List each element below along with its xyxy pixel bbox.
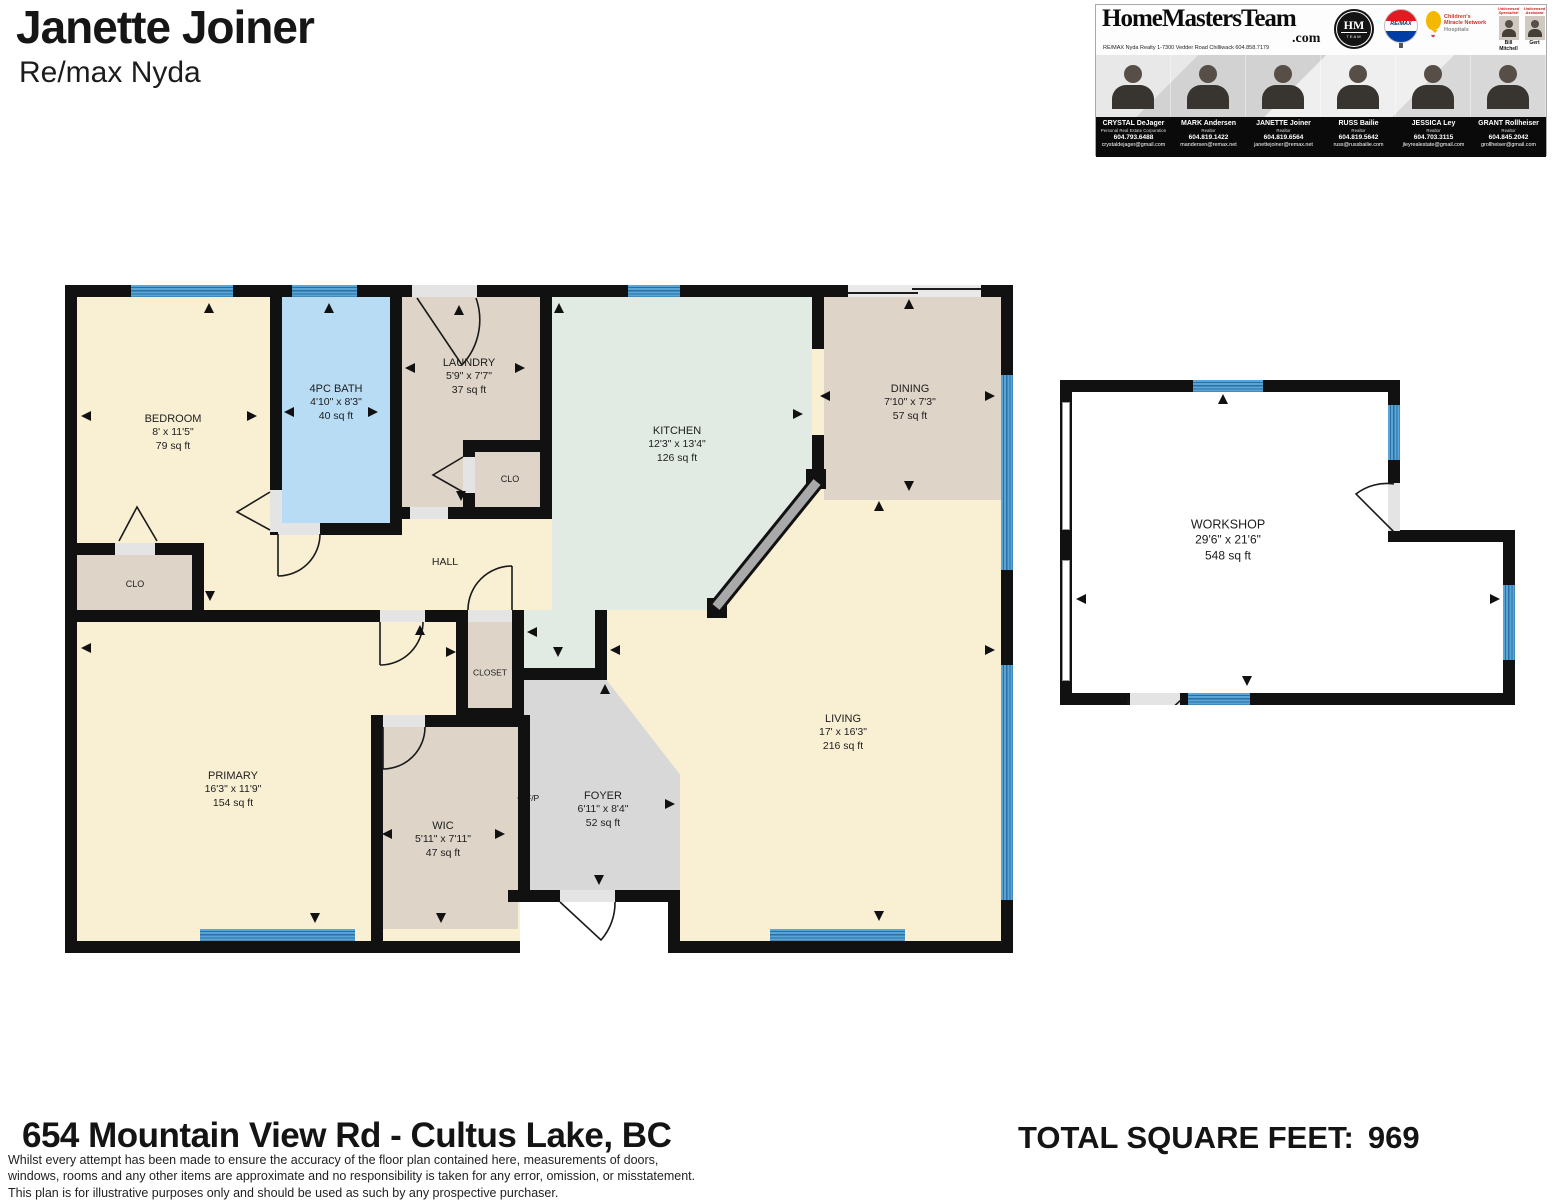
floorplan-page: Janette Joiner Re/max Nyda HomeMastersTe… bbox=[0, 0, 1553, 1200]
arrow-left-icon bbox=[610, 645, 620, 655]
room-label-living: LIVING17' x 16'3"216 sq ft bbox=[819, 712, 867, 754]
agent-contact: JESSICA LeyRealtor 604.703.3115jleyreale… bbox=[1396, 117, 1471, 157]
agent-contact: RUSS BailieRealtor 604.819.5642russ@russ… bbox=[1321, 117, 1396, 157]
arrow-up-icon bbox=[904, 299, 914, 309]
agent-photo bbox=[1321, 55, 1396, 117]
arrow-right-icon bbox=[368, 407, 378, 417]
banner-top-strip: HomeMastersTeam .com RE/MAX Nyda Realty … bbox=[1096, 5, 1546, 55]
arrow-right-icon bbox=[446, 647, 456, 657]
window bbox=[1503, 585, 1515, 660]
wall bbox=[812, 297, 824, 349]
agent-contact: CRYSTAL DeJagerPersonal Real Estate Corp… bbox=[1096, 117, 1171, 157]
outside-recess bbox=[520, 902, 668, 953]
arrow-down-icon bbox=[904, 481, 914, 491]
agent-photo-strip bbox=[1096, 55, 1546, 117]
arrow-up-icon bbox=[324, 303, 334, 313]
cmn-balloon-icon bbox=[1426, 11, 1441, 30]
office-address-line: RE/MAX Nyda Realty 1-7300 Vedder Road Ch… bbox=[1103, 45, 1269, 51]
room-label-clo: CLO bbox=[501, 474, 520, 486]
door-opening bbox=[1388, 483, 1400, 531]
room-label-hall: HALL bbox=[432, 556, 458, 570]
room-label-wic: WIC5'11" x 7'11"47 sq ft bbox=[415, 819, 471, 861]
agent-photo bbox=[1246, 55, 1321, 117]
arrow-left-icon bbox=[820, 391, 830, 401]
room-label-workshop: WORKSHOP 29'6" x 21'6"548 sq ft bbox=[1191, 516, 1265, 563]
arrow-up-icon bbox=[1218, 394, 1228, 404]
arrow-left-icon bbox=[405, 363, 415, 373]
window bbox=[1001, 375, 1013, 570]
remax-balloon-label: RE/MAX bbox=[1384, 21, 1418, 27]
agent-contact: MARK AndersenRealtor 604.819.1422manders… bbox=[1171, 117, 1246, 157]
remax-balloon-basket bbox=[1399, 43, 1403, 48]
arrow-down-icon bbox=[874, 911, 884, 921]
room-label-dining: DINING7'10" x 7'3"57 sq ft bbox=[884, 382, 936, 424]
arrow-left-icon bbox=[1076, 594, 1086, 604]
floor-plan-workshop: WORKSHOP 29'6" x 21'6"548 sq ft bbox=[1060, 380, 1515, 705]
wall bbox=[77, 610, 380, 622]
wall bbox=[456, 610, 468, 720]
room-area-workshop bbox=[1388, 542, 1503, 693]
garage-door bbox=[1062, 560, 1070, 681]
wall bbox=[540, 297, 552, 519]
room-label-laundry: LAUNDRY5'9" x 7'7"37 sq ft bbox=[443, 356, 495, 398]
staff-badge: Unlicensed Specialist! Bill Mitchell bbox=[1496, 7, 1521, 52]
door-opening bbox=[115, 543, 155, 555]
team-banner: HomeMastersTeam .com RE/MAX Nyda Realty … bbox=[1095, 4, 1547, 156]
arrow-down-icon bbox=[436, 913, 446, 923]
window bbox=[628, 285, 680, 297]
window bbox=[292, 285, 357, 297]
window bbox=[1388, 405, 1400, 460]
room-area-kitchen-strip bbox=[524, 610, 595, 668]
room-area-closet bbox=[468, 622, 512, 708]
arrow-up-icon bbox=[874, 501, 884, 511]
room-label-closet: CLOSET bbox=[473, 667, 507, 678]
arrow-down-icon bbox=[594, 875, 604, 885]
wall bbox=[425, 610, 456, 622]
door-opening bbox=[1130, 693, 1180, 705]
arrow-right-icon bbox=[247, 411, 257, 421]
door-opening bbox=[383, 715, 425, 727]
agent-name-heading: Janette Joiner bbox=[16, 0, 314, 54]
arrow-left-icon bbox=[81, 411, 91, 421]
door-opening bbox=[270, 490, 282, 532]
arrow-up-icon bbox=[600, 684, 610, 694]
door-opening bbox=[380, 610, 425, 622]
room-label-clo2: CLO bbox=[126, 579, 145, 591]
sliding-door-panel bbox=[912, 288, 981, 290]
room-label-bath: 4PC BATH4'10" x 8'3"40 sq ft bbox=[310, 382, 363, 424]
wall bbox=[390, 297, 402, 535]
room-label-primary: PRIMARY16'3" x 11'9"154 sq ft bbox=[205, 769, 262, 811]
agent-photo bbox=[1471, 55, 1546, 117]
garage-door bbox=[1062, 402, 1070, 530]
arrow-right-icon bbox=[665, 799, 675, 809]
door-opening bbox=[468, 610, 512, 622]
window bbox=[1001, 665, 1013, 900]
cmn-logo-text: Children's Miracle Network Hospitals bbox=[1444, 14, 1486, 33]
door-opening bbox=[560, 890, 615, 902]
wall-stub bbox=[806, 469, 826, 489]
arrow-down-icon bbox=[553, 647, 563, 657]
arrow-left-icon bbox=[284, 407, 294, 417]
door-opening bbox=[412, 285, 477, 297]
arrow-down-icon bbox=[1242, 676, 1252, 686]
door-opening bbox=[410, 507, 448, 519]
arrow-left-icon bbox=[81, 643, 91, 653]
door-opening bbox=[463, 457, 475, 493]
window bbox=[770, 929, 905, 941]
wall-stub bbox=[707, 598, 727, 618]
fireplace-label: F/P bbox=[513, 793, 539, 803]
door-opening bbox=[278, 523, 320, 535]
room-label-foyer: FOYER6'11" x 8'4"52 sq ft bbox=[578, 789, 629, 831]
sliding-door bbox=[848, 285, 981, 297]
cmn-heart-icon: ❤ bbox=[1431, 34, 1435, 40]
agent-contact-strip: CRYSTAL DeJagerPersonal Real Estate Corp… bbox=[1096, 117, 1546, 157]
sliding-door-panel bbox=[848, 292, 918, 294]
window bbox=[131, 285, 233, 297]
arrow-left-icon bbox=[527, 627, 537, 637]
staff-photo bbox=[1525, 16, 1545, 40]
disclaimer-text: Whilst every attempt has been made to en… bbox=[8, 1152, 695, 1200]
agent-contact: GRANT RollheiserRealtor 604.845.2042grol… bbox=[1471, 117, 1546, 157]
arrow-left-icon bbox=[513, 794, 525, 802]
total-square-feet: TOTAL SQUARE FEET:969 bbox=[1018, 1120, 1420, 1156]
window bbox=[1193, 380, 1263, 392]
arrow-right-icon bbox=[985, 391, 995, 401]
staff-badge: Unlicensed Assistant Gert bbox=[1522, 7, 1547, 46]
agent-contact: JANETTE JoinerRealtor 604.819.6564janett… bbox=[1246, 117, 1321, 157]
agent-photo bbox=[1096, 55, 1171, 117]
arrow-down-icon bbox=[310, 913, 320, 923]
wall bbox=[463, 440, 552, 452]
arrow-up-icon bbox=[554, 303, 564, 313]
arrow-down-icon bbox=[456, 491, 466, 501]
floor-plan-main: BEDROOM8' x 11'5"79 sq ft 4PC BATH4'10" … bbox=[65, 285, 1013, 953]
hm-team-logo-icon: HM TEAM bbox=[1334, 9, 1374, 49]
agent-photo bbox=[1171, 55, 1246, 117]
arrow-right-icon bbox=[515, 363, 525, 373]
wall bbox=[512, 668, 607, 680]
arrow-right-icon bbox=[985, 645, 995, 655]
team-brand-tld: .com bbox=[1292, 31, 1320, 47]
staff-photo bbox=[1499, 16, 1519, 40]
room-label-bedroom: BEDROOM8' x 11'5"79 sq ft bbox=[145, 412, 202, 454]
window bbox=[200, 929, 355, 941]
arrow-right-icon bbox=[1490, 594, 1500, 604]
agent-photo bbox=[1396, 55, 1471, 117]
team-brand-name: HomeMastersTeam bbox=[1102, 5, 1296, 33]
room-label-kitchen: KITCHEN12'3" x 13'4"126 sq ft bbox=[648, 424, 706, 466]
arrow-right-icon bbox=[793, 409, 803, 419]
arrow-up-icon bbox=[204, 303, 214, 313]
wall bbox=[371, 715, 383, 941]
arrow-up-icon bbox=[415, 625, 425, 635]
arrow-up-icon bbox=[454, 305, 464, 315]
wall bbox=[668, 902, 680, 953]
property-address: 654 Mountain View Rd - Cultus Lake, BC bbox=[22, 1116, 671, 1156]
arrow-right-icon bbox=[495, 829, 505, 839]
brokerage-name: Re/max Nyda bbox=[19, 56, 201, 90]
wall bbox=[512, 610, 524, 720]
arrow-left-icon bbox=[382, 829, 392, 839]
arrow-down-icon bbox=[205, 591, 215, 601]
window bbox=[1188, 693, 1250, 705]
